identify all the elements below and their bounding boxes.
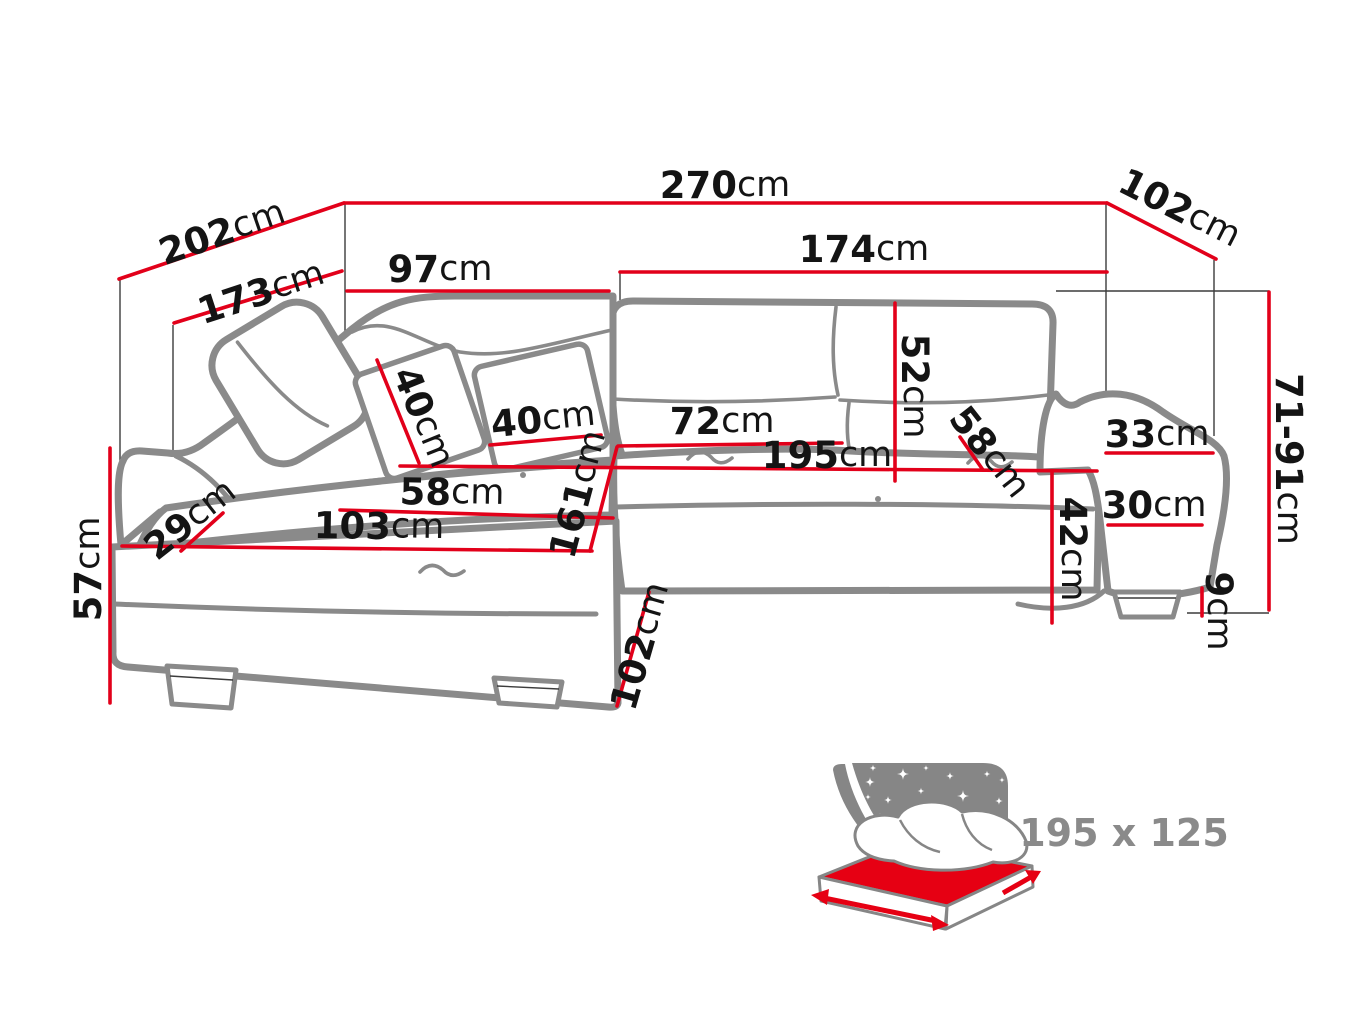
sofa-left-leg-rear xyxy=(494,678,562,707)
bed-icon: 195 x 125 xyxy=(811,763,1229,931)
dim-57-label: 57cm xyxy=(67,517,110,622)
dim-270-label: 270cm xyxy=(660,164,791,207)
dim-9-label: 9cm xyxy=(1198,571,1241,650)
dim-42-label: 42cm xyxy=(1052,497,1095,602)
dim-71-91-label: 71-91cm xyxy=(1268,373,1311,545)
dim-174-label: 174cm xyxy=(799,228,930,271)
sofa-left-leg-front xyxy=(167,666,236,708)
dim-195-label: 195cm xyxy=(762,434,893,477)
dim-202-label: 202cm xyxy=(153,190,290,273)
dim-97-label: 97cm xyxy=(388,248,493,291)
sofa-dimension-diagram: 270cm 202cm 102cm 174cm 173cm 97cm 40cm … xyxy=(0,0,1367,1025)
dim-33-label: 33cm xyxy=(1105,413,1210,456)
dim-72-label: 72cm xyxy=(670,400,775,443)
seat-button-right xyxy=(875,496,881,502)
dim-103-label: 103cm xyxy=(313,503,444,548)
sofa-right-leg xyxy=(1114,592,1180,617)
dim-30-label: 30cm xyxy=(1102,484,1207,527)
chaise-button-left xyxy=(520,472,526,478)
dim-52-label: 52cm xyxy=(894,334,937,439)
bed-size-label: 195 x 125 xyxy=(1019,811,1229,855)
